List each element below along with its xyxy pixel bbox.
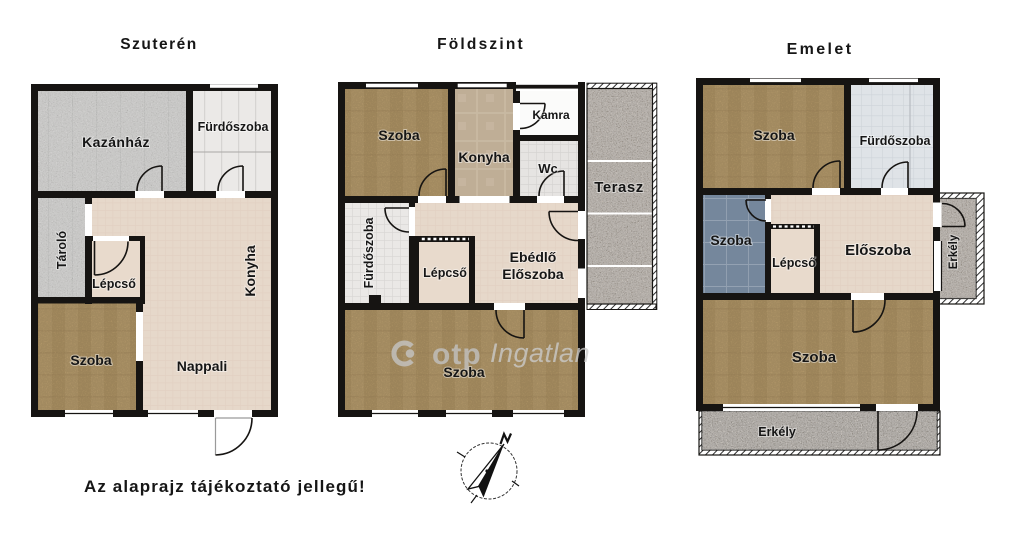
svg-text:Szuterén: Szuterén: [120, 36, 197, 53]
svg-text:Előszoba: Előszoba: [845, 242, 912, 259]
svg-text:Földszint: Földszint: [437, 36, 525, 53]
svg-text:Ingatlan: Ingatlan: [490, 338, 590, 368]
svg-text:otp: otp: [432, 338, 482, 371]
svg-text:Ebédlő: Ebédlő: [510, 249, 557, 265]
svg-text:Fürdőszoba: Fürdőszoba: [198, 120, 270, 134]
svg-text:Emelet: Emelet: [787, 41, 854, 58]
svg-text:Szoba: Szoba: [710, 232, 751, 248]
svg-text:Fürdőszoba: Fürdőszoba: [860, 134, 932, 148]
svg-text:Konyha: Konyha: [458, 149, 510, 165]
svg-text:Szoba: Szoba: [378, 127, 419, 143]
svg-text:Az alaprajz tájékoztató jelleg: Az alaprajz tájékoztató jellegű!: [84, 477, 366, 496]
svg-text:Kazánház: Kazánház: [82, 134, 150, 150]
svg-text:Lépcső: Lépcső: [92, 277, 136, 291]
svg-text:Nappali: Nappali: [177, 358, 228, 374]
svg-text:Szoba: Szoba: [792, 349, 837, 366]
svg-text:Wc: Wc: [538, 161, 558, 176]
svg-text:Lépcső: Lépcső: [423, 266, 467, 280]
svg-text:Szoba: Szoba: [70, 352, 111, 368]
svg-text:Fürdőszoba: Fürdőszoba: [362, 217, 376, 289]
svg-text:Tároló: Tároló: [55, 231, 69, 270]
svg-text:Kamra: Kamra: [532, 108, 570, 122]
svg-text:Erkély: Erkély: [758, 425, 796, 439]
svg-text:Előszoba: Előszoba: [502, 266, 564, 282]
svg-text:Konyha: Konyha: [242, 245, 258, 297]
svg-text:Szoba: Szoba: [753, 127, 794, 143]
svg-text:Erkély: Erkély: [948, 234, 960, 269]
svg-text:Terasz: Terasz: [594, 179, 643, 196]
svg-text:Lépcső: Lépcső: [772, 256, 816, 270]
